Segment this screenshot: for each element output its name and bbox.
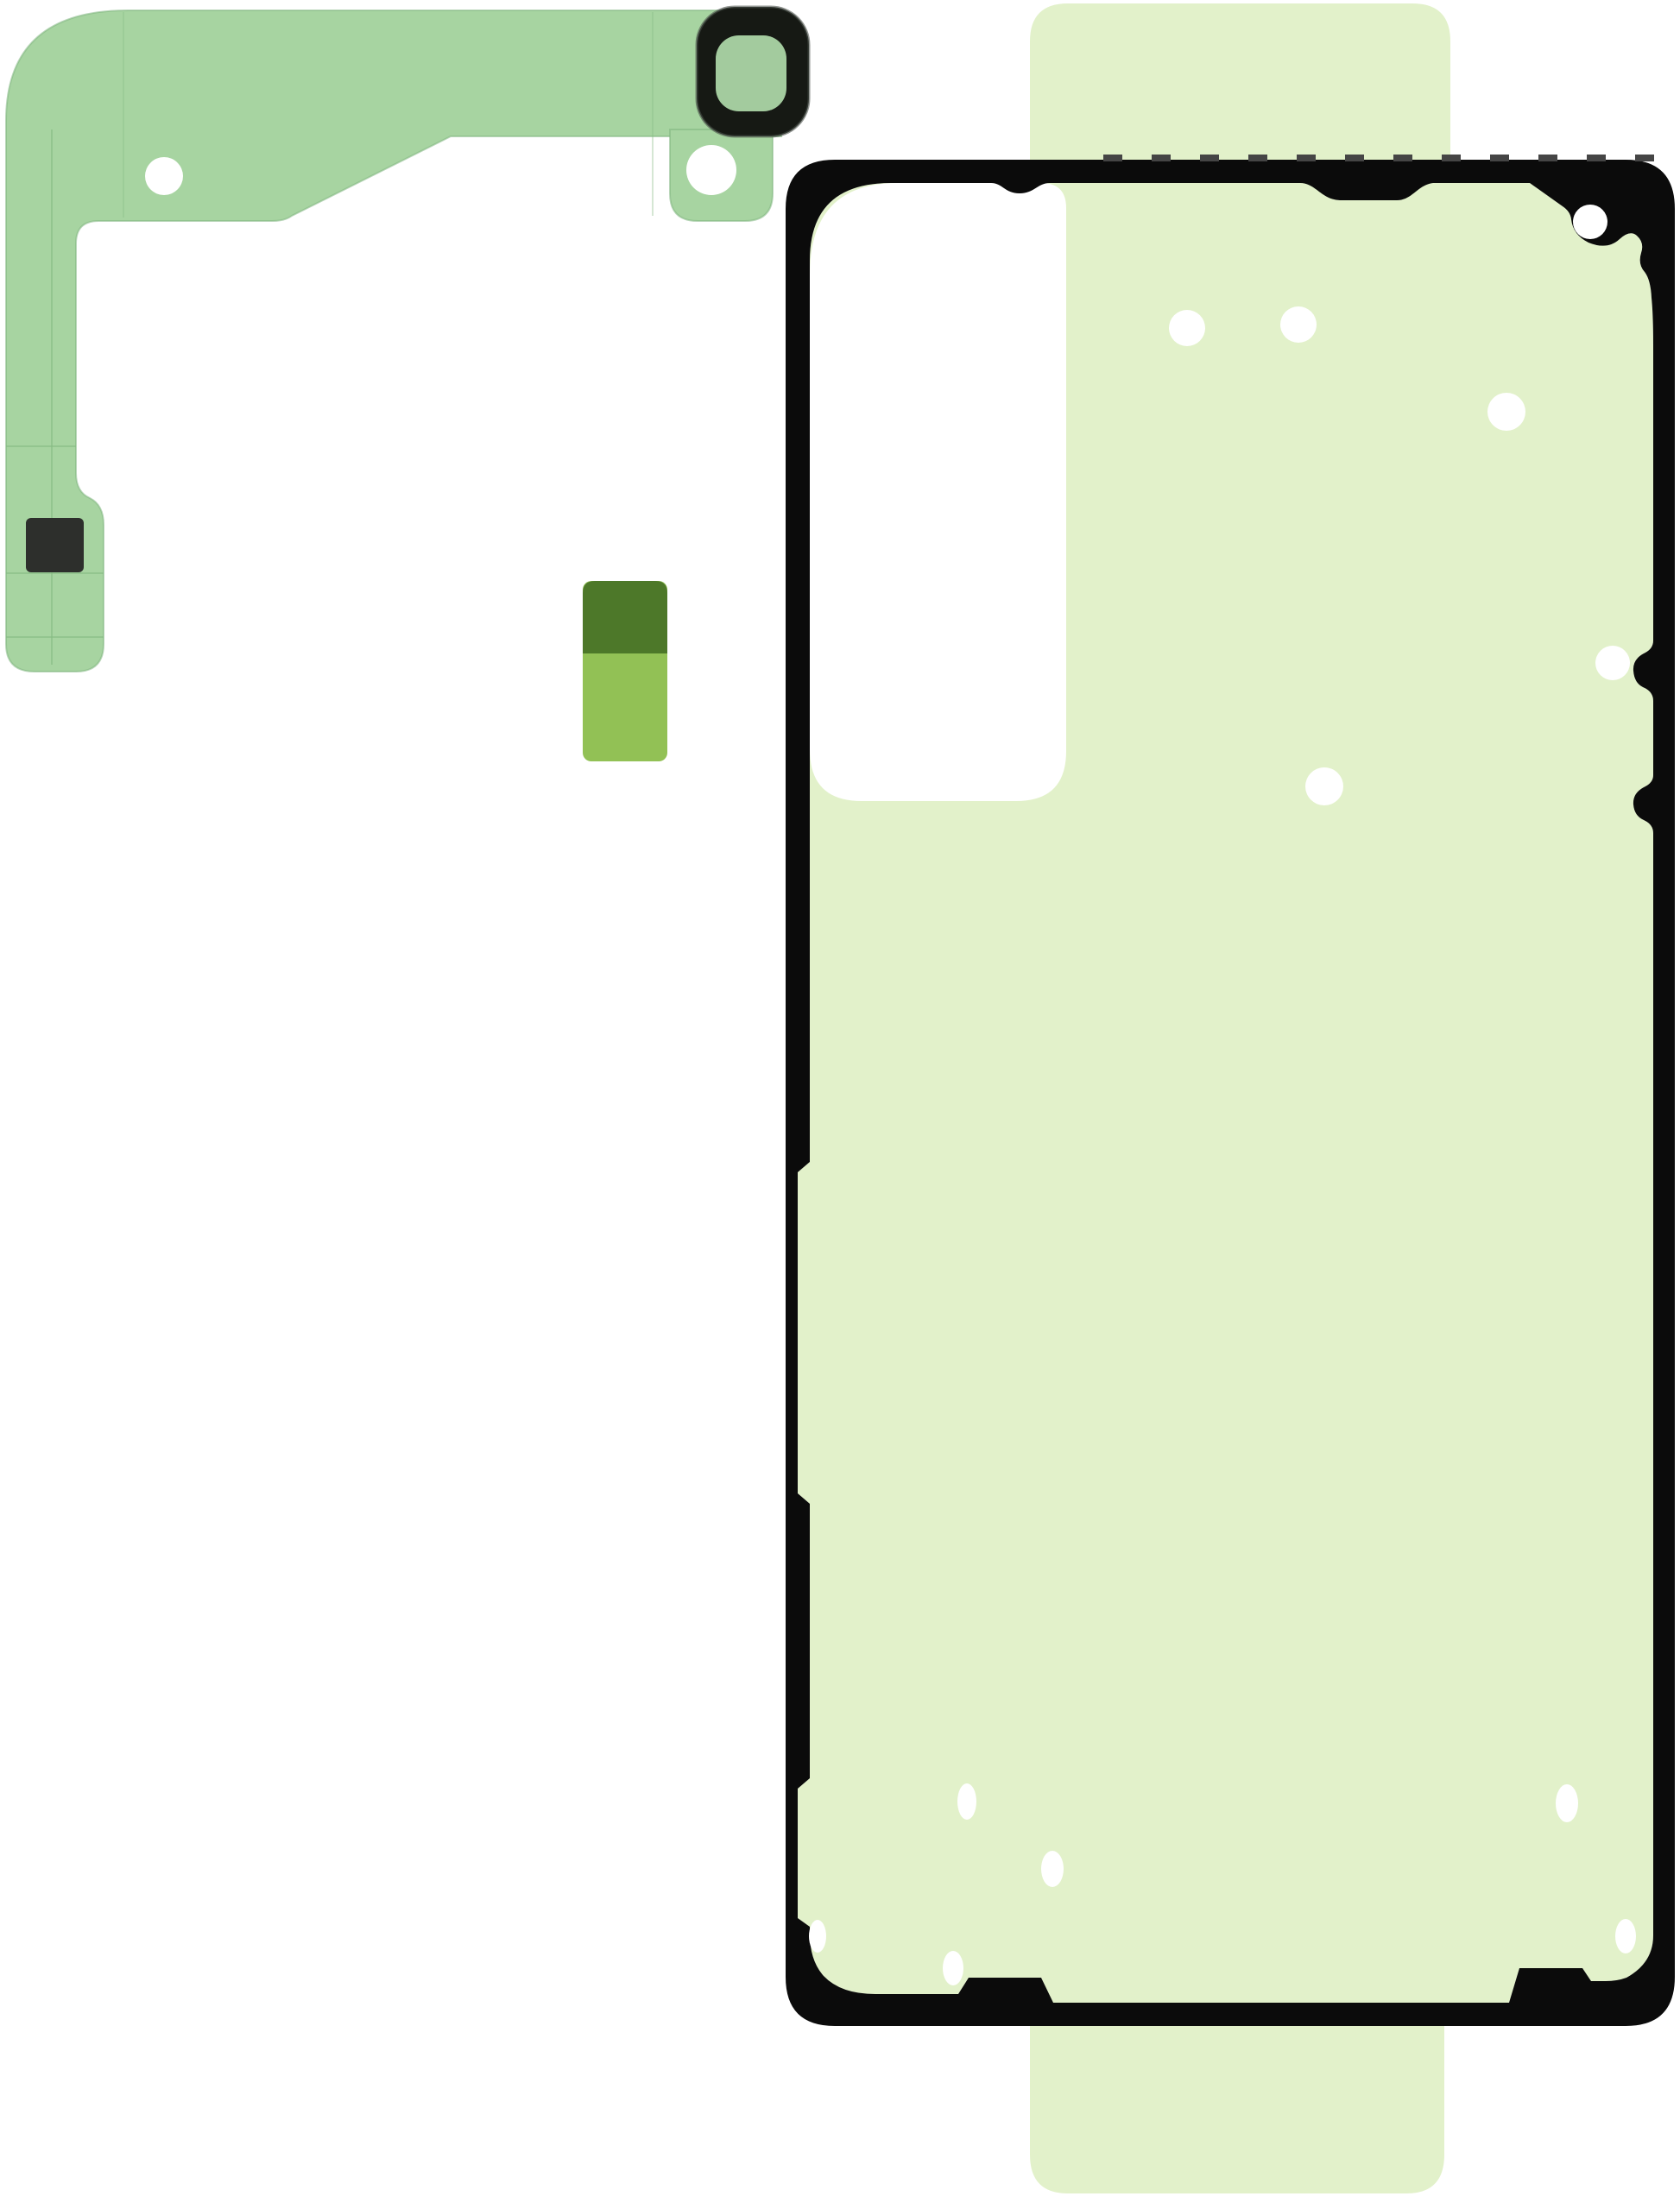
liner-hole <box>1041 1851 1064 1887</box>
liner-hole <box>1280 306 1317 343</box>
liner-hole <box>1169 310 1205 346</box>
liner-hole <box>1305 767 1343 805</box>
strip-alignment-hole <box>145 157 183 195</box>
serration-tick <box>1490 155 1509 161</box>
liner-hole-corner <box>1573 205 1607 239</box>
strip-pull-square <box>26 518 84 572</box>
serration-tick <box>1442 155 1461 161</box>
adhesive-kit-image <box>0 0 1680 2209</box>
small-adhesive-pad <box>583 581 667 761</box>
pad-dark-section <box>583 581 667 653</box>
serration-tick <box>1103 155 1122 161</box>
camera-ring-opening <box>716 35 786 111</box>
serration-tick <box>1393 155 1412 161</box>
serration-tick <box>1538 155 1557 161</box>
liner-hole <box>1556 1784 1578 1822</box>
strip-tab-hole <box>686 145 736 195</box>
liner-hole <box>1615 1919 1636 1953</box>
serration-tick <box>1152 155 1171 161</box>
liner-hole <box>943 1951 963 1985</box>
serration-tick <box>1297 155 1316 161</box>
serration-tick <box>1635 155 1654 161</box>
serration-tick <box>1345 155 1364 161</box>
liner-hole <box>1487 393 1525 431</box>
serration-tick <box>1248 155 1267 161</box>
product-photo <box>0 0 1680 2209</box>
camera-cutout-window <box>810 183 1066 801</box>
liner-hole <box>809 1920 826 1953</box>
liner-hole <box>957 1783 976 1820</box>
back-cover-adhesive <box>786 3 1675 2193</box>
liner-hole-notch <box>1595 646 1630 680</box>
serration-tick <box>1587 155 1606 161</box>
serration-tick <box>1200 155 1219 161</box>
